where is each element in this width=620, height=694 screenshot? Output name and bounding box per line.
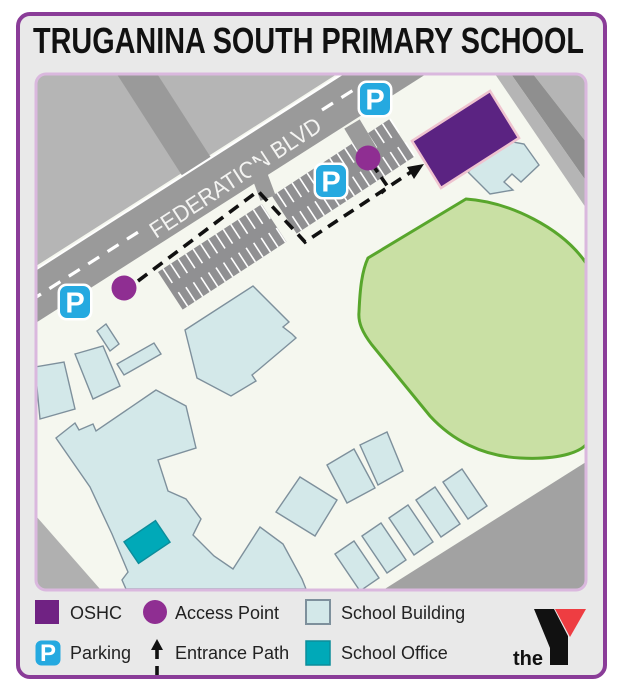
svg-text:the: the <box>513 648 543 670</box>
svg-text:P: P <box>40 640 56 667</box>
